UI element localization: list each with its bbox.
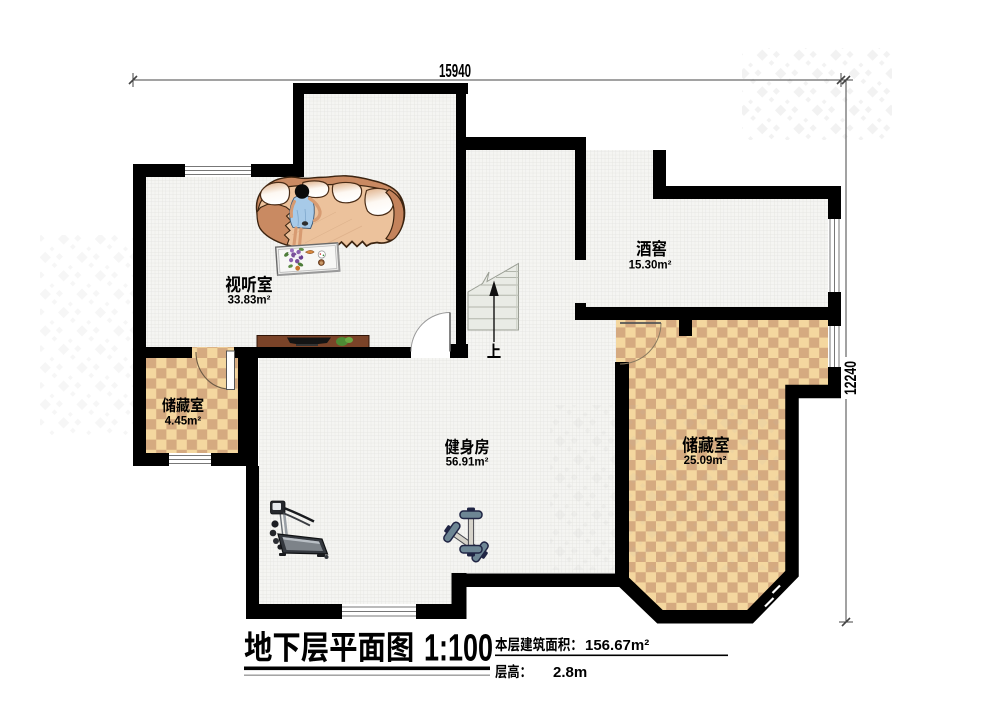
svg-text:12240: 12240 [841,361,860,395]
svg-text:2.8m: 2.8m [553,664,587,681]
svg-text:1:100: 1:100 [424,626,493,669]
svg-text:156.67m²: 156.67m² [585,637,649,654]
svg-text:56.91m²: 56.91m² [446,457,489,469]
svg-text:15.30m²: 15.30m² [629,260,672,272]
svg-text:33.83m²: 33.83m² [228,295,271,307]
svg-text:25.09m²: 25.09m² [684,455,727,467]
svg-text:15940: 15940 [439,61,471,81]
svg-text:4.45m²: 4.45m² [165,416,202,428]
